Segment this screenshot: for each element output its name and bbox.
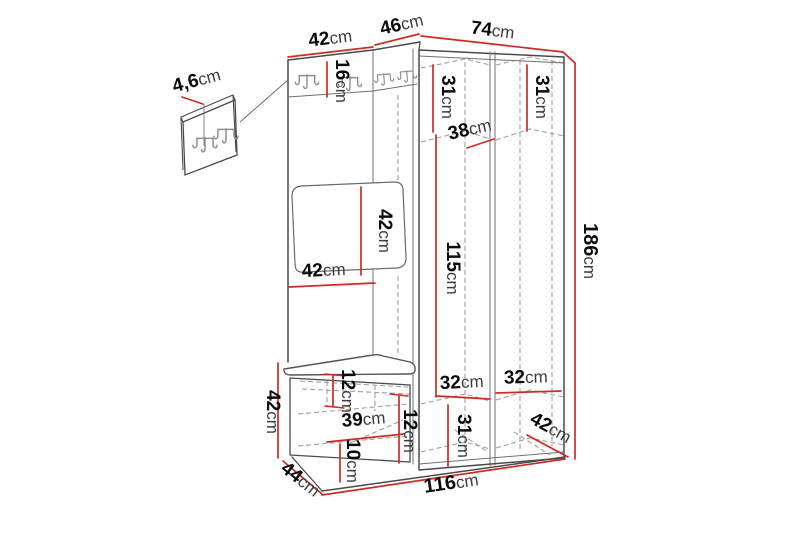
dim-line-height-connector (563, 52, 575, 63)
dim-label-bench-bottom: 10cm (342, 439, 363, 483)
dimension-diagram: 4,6cm 42cm 46cm 74cm 16cm 31cm 31cm 38cm… (0, 0, 800, 533)
dim-label-panel-depth: 4,6cm (170, 64, 223, 97)
dim-label-seat-height: 12cm (337, 369, 358, 413)
dim-label-door-height: 115cm (442, 241, 463, 294)
dim-label-hook-panel-height: 16cm (331, 59, 352, 103)
dim-label-total-height: 186cm (579, 223, 601, 279)
dim-label-corner-width: 46cm (378, 9, 425, 39)
dim-label-bottom-width-left: 32cm (439, 371, 484, 394)
dim-label-wardrobe-width: 74cm (470, 17, 516, 43)
dim-label-top-depth-left: 31cm (437, 75, 458, 119)
wall-hook-panel-inset (181, 95, 237, 175)
dim-label-bench-height: 42cm (262, 390, 283, 434)
inset-leader-line (240, 80, 288, 122)
dim-label-top-depth-right: 31cm (531, 75, 552, 119)
dim-label-shelf-width: 42cm (301, 259, 346, 282)
diagram-svg: 4,6cm 42cm 46cm 74cm 16cm 31cm 31cm 38cm… (0, 0, 800, 533)
dim-label-bottom-height: 31cm (453, 414, 474, 458)
dim-line-panel-depth (182, 97, 203, 104)
dim-label-plinth-height: 12cm (399, 409, 420, 453)
dim-label-mirror-height: 42cm (374, 209, 395, 253)
dim-label-left-width: 42cm (307, 25, 353, 51)
dim-label-bottom-width-right: 32cm (504, 366, 549, 389)
